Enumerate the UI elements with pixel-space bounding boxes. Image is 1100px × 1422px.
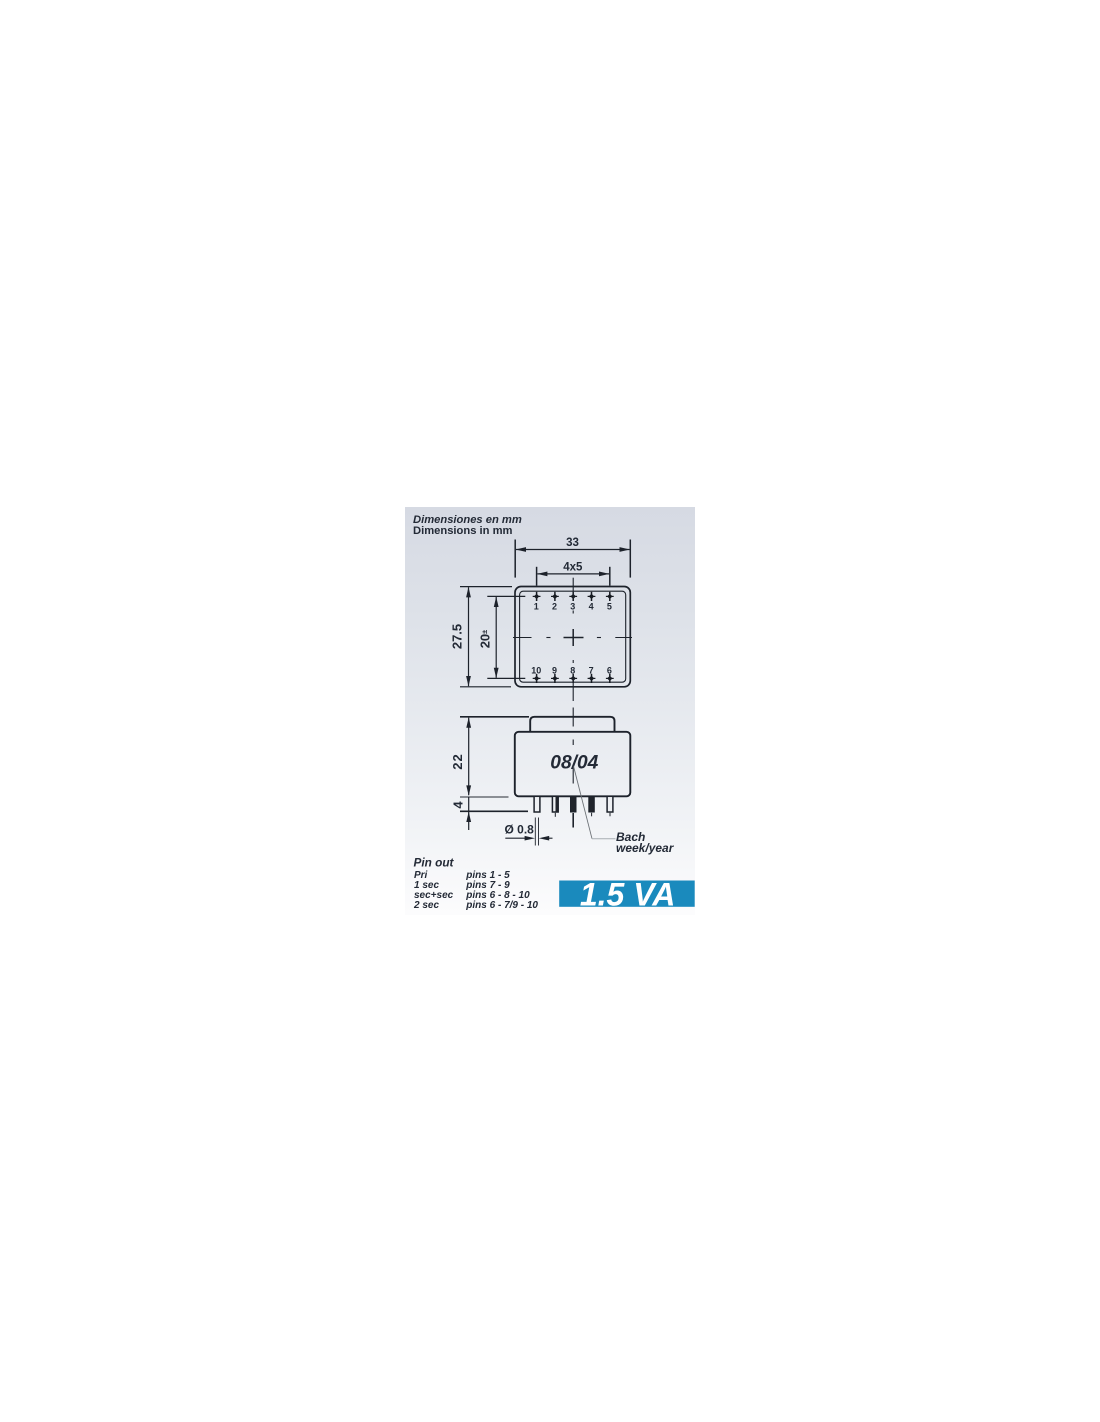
svg-text:27.5: 27.5 [450, 624, 465, 649]
svg-text:7: 7 [589, 666, 594, 676]
svg-text:2 sec: 2 sec [413, 900, 439, 911]
svg-text:4x5: 4x5 [563, 562, 583, 574]
svg-text:3: 3 [570, 602, 575, 612]
svg-text:week/year: week/year [616, 841, 675, 855]
svg-text:8: 8 [570, 666, 575, 676]
svg-text:1.5 VA: 1.5 VA [580, 876, 675, 912]
svg-text:6: 6 [607, 666, 612, 676]
svg-text:Ø 0.8: Ø 0.8 [505, 823, 535, 837]
svg-text:22: 22 [450, 753, 465, 769]
svg-text:1: 1 [534, 602, 539, 612]
svg-text:5: 5 [607, 602, 612, 612]
svg-text:Dimensiones en mm: Dimensiones en mm [413, 514, 522, 526]
svg-text:10: 10 [531, 666, 541, 676]
svg-text:9: 9 [552, 666, 557, 676]
svg-text:4: 4 [589, 602, 594, 612]
svg-text:Pin out: Pin out [414, 856, 455, 870]
svg-text:33: 33 [566, 537, 579, 549]
svg-text:4: 4 [451, 801, 466, 809]
svg-text:pins 6 - 7/9 - 10: pins 6 - 7/9 - 10 [465, 900, 538, 911]
svg-text:Dimensions in mm: Dimensions in mm [413, 525, 513, 537]
svg-text:2: 2 [552, 602, 557, 612]
